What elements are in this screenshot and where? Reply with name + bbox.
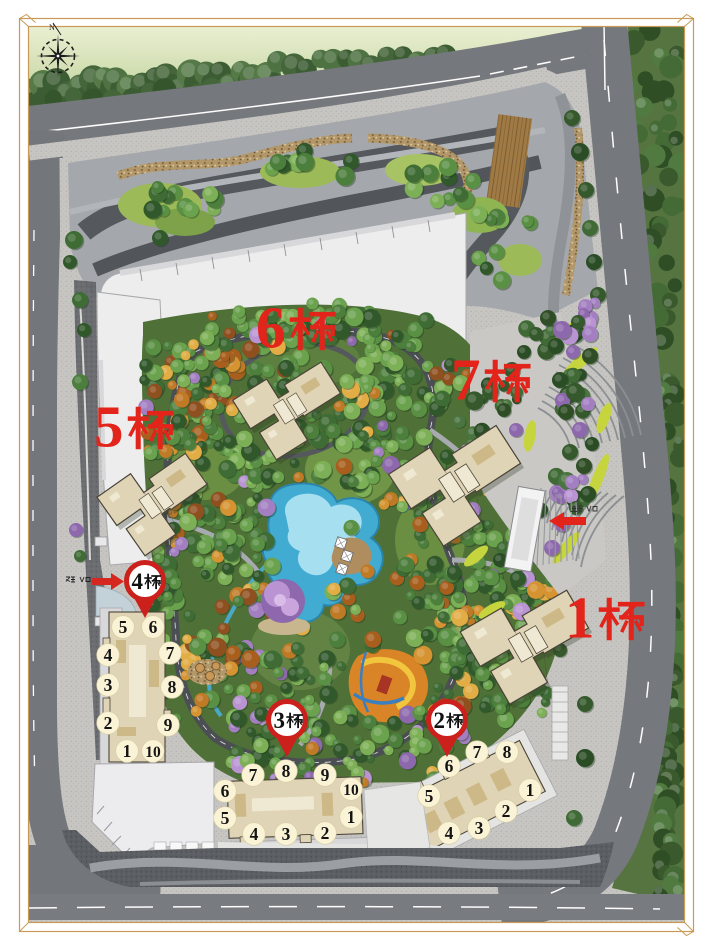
svg-text:1: 1 [526, 780, 535, 800]
svg-text:4: 4 [250, 824, 259, 844]
svg-text:5: 5 [119, 617, 128, 637]
svg-text:10: 10 [145, 744, 161, 761]
svg-text:3: 3 [104, 675, 113, 695]
svg-text:3: 3 [475, 818, 484, 838]
svg-text:2: 2 [321, 823, 330, 843]
svg-text:7: 7 [473, 742, 482, 762]
svg-text:9: 9 [164, 715, 173, 735]
svg-text:7: 7 [249, 765, 258, 785]
svg-text:8: 8 [503, 742, 512, 762]
svg-text:1: 1 [123, 741, 132, 761]
svg-text:1: 1 [347, 807, 356, 827]
svg-text:1: 1 [565, 585, 595, 651]
svg-text:N: N [49, 23, 55, 32]
svg-text:7: 7 [166, 643, 175, 663]
svg-text:10: 10 [343, 782, 359, 799]
svg-text:6: 6 [221, 781, 230, 801]
svg-text:2: 2 [104, 713, 113, 733]
svg-text:5: 5 [94, 394, 124, 460]
svg-text:2: 2 [434, 708, 446, 733]
svg-text:5: 5 [221, 808, 230, 828]
svg-text:6: 6 [149, 617, 158, 637]
svg-text:9: 9 [321, 765, 330, 785]
svg-text:4: 4 [445, 823, 454, 843]
svg-text:6: 6 [256, 295, 286, 361]
svg-text:3: 3 [274, 708, 286, 733]
svg-text:4: 4 [132, 569, 144, 594]
svg-text:6: 6 [445, 756, 454, 776]
svg-text:5: 5 [425, 786, 434, 806]
svg-text:2: 2 [502, 801, 511, 821]
svg-text:8: 8 [282, 761, 291, 781]
svg-text:4: 4 [104, 645, 113, 665]
svg-text:3: 3 [282, 824, 291, 844]
svg-text:8: 8 [168, 677, 177, 697]
svg-text:7: 7 [451, 347, 481, 413]
